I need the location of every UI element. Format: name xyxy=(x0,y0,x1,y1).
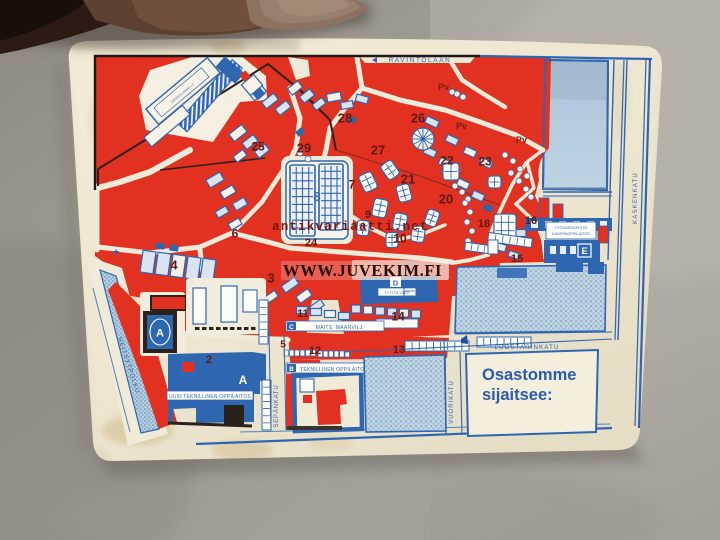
svg-text:B: B xyxy=(289,366,294,373)
svg-text:12: 12 xyxy=(309,345,321,357)
svg-text:24: 24 xyxy=(305,237,318,249)
svg-text:16: 16 xyxy=(525,215,537,227)
svg-text:18: 18 xyxy=(478,218,490,230)
svg-text:TEKNILLINEN OPPILAITOS: TEKNILLINEN OPPILAITOS xyxy=(300,367,368,373)
svg-text:KASKENKATU: KASKENKATU xyxy=(633,172,639,224)
svg-text:WWW.JUVEKIM.FI: WWW.JUVEKIM.FI xyxy=(283,261,442,280)
svg-text:20: 20 xyxy=(439,192,453,207)
svg-text:7: 7 xyxy=(349,177,356,191)
svg-text:14: 14 xyxy=(391,309,405,323)
svg-text:15: 15 xyxy=(511,253,523,265)
svg-text:28: 28 xyxy=(338,111,352,126)
svg-text:SEPÄNKATU: SEPÄNKATU xyxy=(273,384,280,427)
svg-text:Pv: Pv xyxy=(456,121,467,131)
svg-text:RAVINTOLAAN: RAVINTOLAAN xyxy=(389,57,452,64)
svg-text:6: 6 xyxy=(232,226,239,240)
svg-text:5: 5 xyxy=(280,340,286,351)
svg-text:Pv: Pv xyxy=(516,135,527,145)
svg-text:UUSI TEKNILLINEN OPPILAITOS: UUSI TEKNILLINEN OPPILAITOS xyxy=(169,394,251,400)
svg-text:21: 21 xyxy=(401,172,415,187)
svg-text:Osastomme: Osastomme xyxy=(482,366,576,384)
svg-text:MAITS. MAANVILJ.: MAITS. MAANVILJ. xyxy=(316,325,365,331)
svg-text:23: 23 xyxy=(478,154,492,168)
svg-text:25: 25 xyxy=(251,139,265,153)
svg-text:27: 27 xyxy=(371,143,385,158)
svg-text:3: 3 xyxy=(267,271,274,286)
svg-text:VUORIKATU: VUORIKATU xyxy=(449,380,455,424)
svg-text:TYTTÖLYSEO: TYTTÖLYSEO xyxy=(384,291,410,295)
svg-text:Pv: Pv xyxy=(438,82,449,92)
svg-text:C: C xyxy=(289,324,294,331)
svg-text:26: 26 xyxy=(411,111,425,126)
svg-text:13: 13 xyxy=(393,344,405,356)
svg-text:29: 29 xyxy=(297,141,311,156)
svg-text:4: 4 xyxy=(170,258,178,273)
svg-text:★: ★ xyxy=(112,247,120,257)
svg-text:sijaitsee:: sijaitsee: xyxy=(482,386,553,404)
svg-text:22: 22 xyxy=(440,153,454,167)
svg-text:LUOSTARINKATU: LUOSTARINKATU xyxy=(494,345,559,351)
svg-text:11: 11 xyxy=(297,308,309,320)
svg-text:KAUPPAOPPILAITOS: KAUPPAOPPILAITOS xyxy=(552,232,590,236)
svg-text:A: A xyxy=(239,373,248,387)
svg-text:E: E xyxy=(581,246,587,257)
svg-text:antikvariaatti.net: antikvariaatti.net xyxy=(272,220,429,234)
svg-text:A: A xyxy=(156,328,164,340)
svg-text:8: 8 xyxy=(313,189,320,204)
svg-text:2: 2 xyxy=(206,354,212,366)
svg-text:TYÖVÄENOPISTO: TYÖVÄENOPISTO xyxy=(555,226,587,230)
